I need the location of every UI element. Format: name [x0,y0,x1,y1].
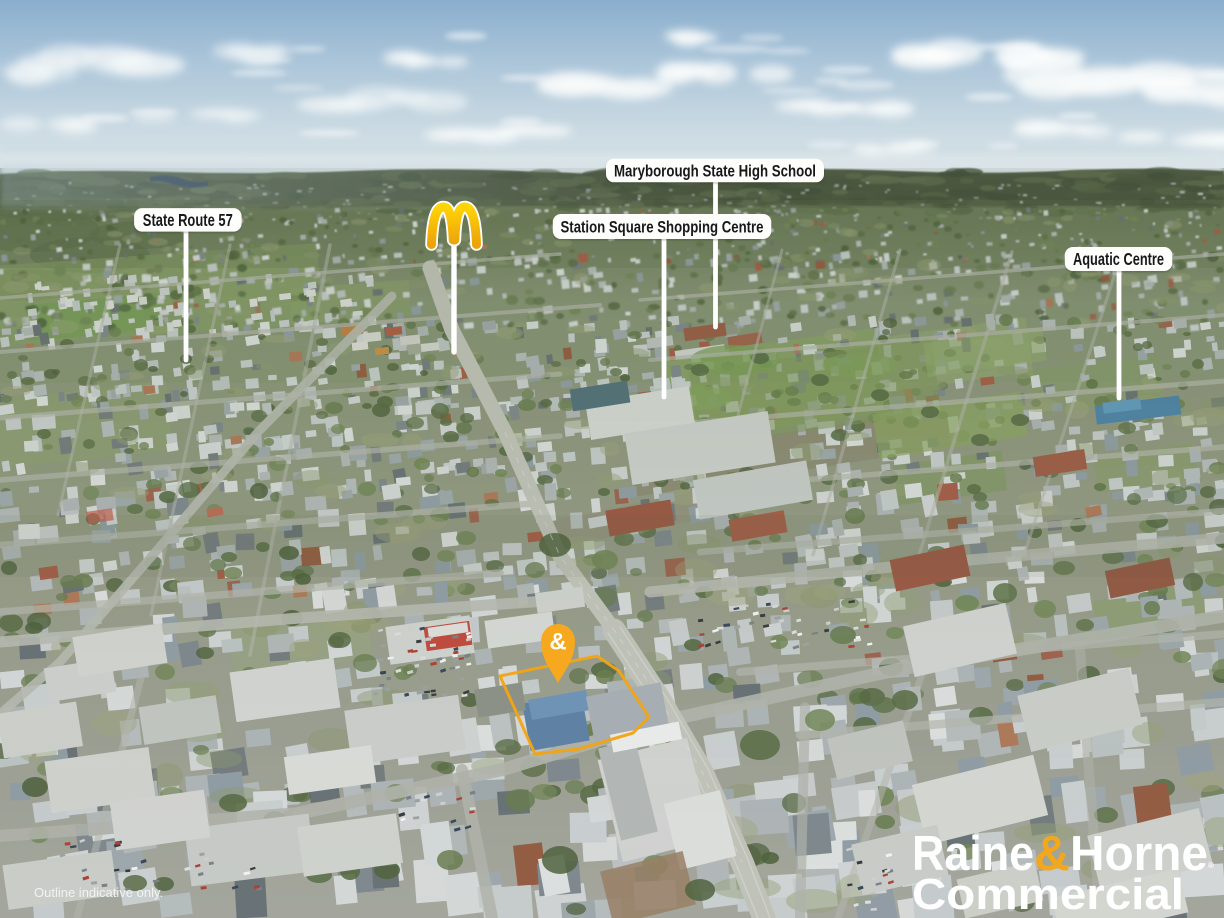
svg-text:State Route 57: State Route 57 [143,210,233,230]
svg-text:Commercial: Commercial [912,870,1184,918]
svg-text:Aquatic Centre: Aquatic Centre [1073,249,1164,269]
svg-text:Outline indicative only.: Outline indicative only. [34,885,163,900]
svg-text:Maryborough State High School: Maryborough State High School [614,162,816,181]
svg-text:&: & [549,629,566,656]
svg-text:Station Square Shopping Centre: Station Square Shopping Centre [561,218,764,237]
svg-text:®: ® [1208,861,1214,870]
